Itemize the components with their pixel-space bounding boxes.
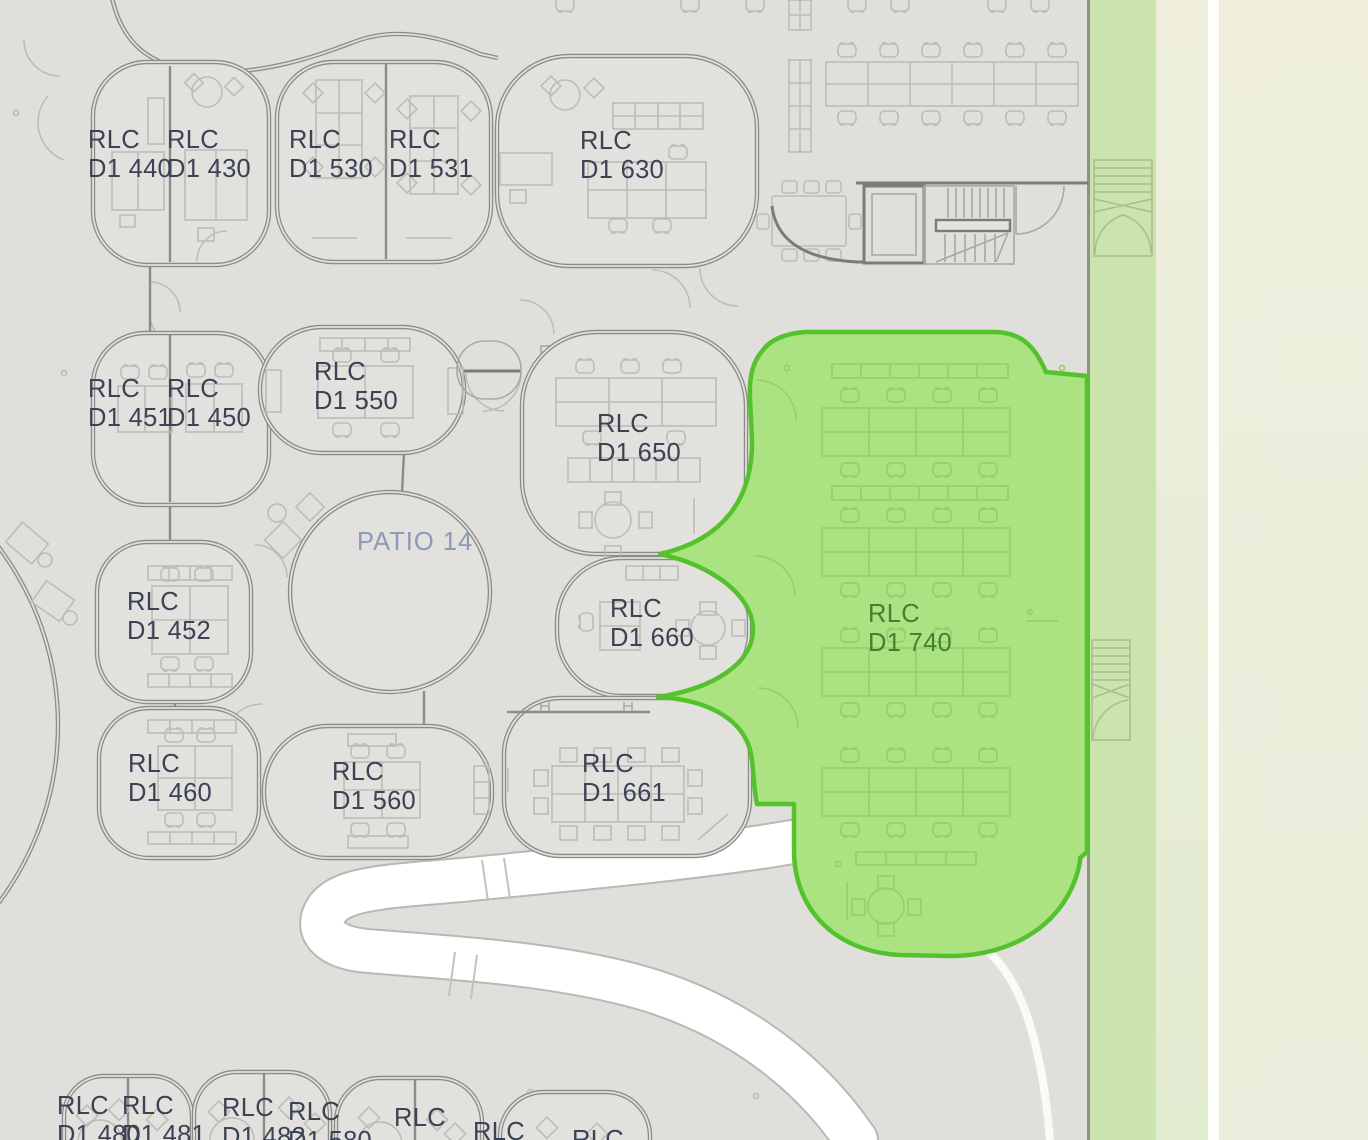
room-label-d1-550: RLCD1 550 — [314, 358, 398, 416]
room-label-partial: RLC — [394, 1104, 446, 1133]
room-label-d1-560: RLCD1 560 — [332, 758, 416, 816]
room-label-partial: RLC — [572, 1126, 624, 1140]
room-label-d1-531: RLCD1 531 — [389, 126, 473, 184]
outdoor-area — [1089, 0, 1368, 1140]
room-label-d1-630: RLCD1 630 — [580, 127, 664, 185]
patio-14-shape[interactable] — [290, 492, 490, 692]
door-arc-icon — [1016, 186, 1064, 234]
room-label-d1-660: RLCD1 660 — [610, 595, 694, 653]
room-label-d1-430: RLCD1 430 — [167, 126, 251, 184]
floor-plan-canvas[interactable]: RLCD1 440 RLCD1 430 RLCD1 530 RLCD1 531 … — [0, 0, 1368, 1140]
room-label-d1-740: RLCD1 740 — [868, 600, 952, 658]
room-label-partial: RLC — [473, 1118, 525, 1140]
room-label-d1-661: RLCD1 661 — [582, 750, 666, 808]
room-label-d1-460: RLCD1 460 — [128, 750, 212, 808]
room-label-d1-580: RLCD1 580 — [288, 1098, 372, 1140]
room-label-d1-481: RLCD1 481 — [122, 1092, 206, 1140]
room-label-d1-452: RLCD1 452 — [127, 588, 211, 646]
room-label-d1-530: RLCD1 530 — [289, 126, 373, 184]
room-label-d1-450: RLCD1 450 — [167, 375, 251, 433]
elevator-icon — [864, 186, 924, 263]
patio-label: PATIO 14 — [357, 528, 473, 557]
room-label-d1-451: RLCD1 451 — [88, 375, 172, 433]
room-label-d1-440: RLCD1 440 — [88, 126, 172, 184]
room-label-d1-650: RLCD1 650 — [597, 410, 681, 468]
staircase-icon — [924, 186, 1014, 264]
